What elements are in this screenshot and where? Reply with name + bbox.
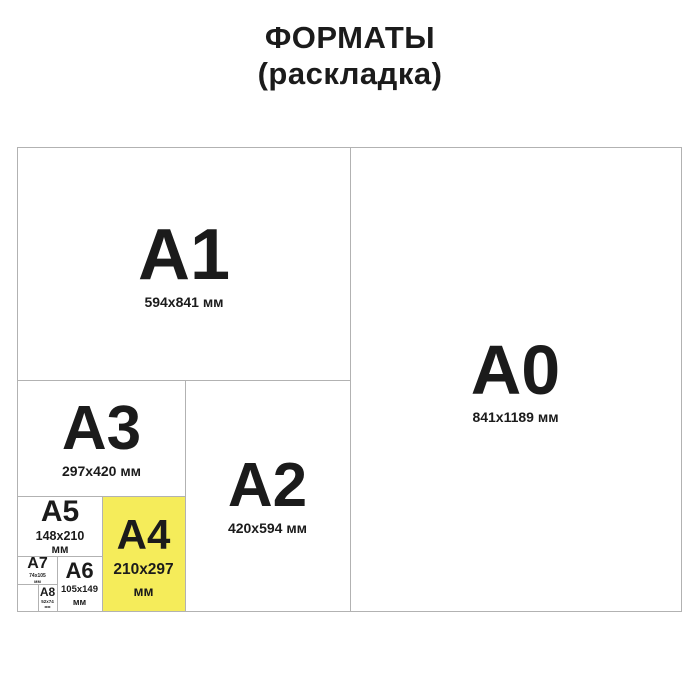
paper-a8: A8 52x74 мм <box>38 584 57 611</box>
paper-a6: A6 105x149 мм <box>57 556 102 611</box>
paper-a4-dims: 210x297 <box>113 561 173 579</box>
paper-a4-code: A4 <box>117 514 171 556</box>
page-title-line1: ФОРМАТЫ <box>0 20 700 56</box>
paper-a5-code: A5 <box>41 497 79 527</box>
paper-a5-dims: 148x210 <box>36 529 85 543</box>
paper-a8-code: A8 <box>40 586 55 598</box>
divider-a1-bottom <box>18 380 350 381</box>
paper-a2-code: A2 <box>228 455 307 517</box>
divider-a4-left <box>102 496 103 611</box>
paper-a7-code: A7 <box>27 556 47 572</box>
paper-a1: A1 594x841 мм <box>18 148 350 380</box>
paper-a2-dims: 420x594 мм <box>228 520 307 536</box>
paper-a4: A4 210x297 мм <box>102 496 185 611</box>
paper-a3: A3 297x420 мм <box>18 380 185 496</box>
paper-a3-code: A3 <box>62 398 141 460</box>
page-title-line2: (раскладка) <box>0 56 700 92</box>
paper-a5: A5 148x210 мм <box>18 496 102 556</box>
page-title: ФОРМАТЫ (раскладка) <box>0 20 700 92</box>
paper-a1-code: A1 <box>138 219 230 291</box>
divider-a5-bottom <box>18 556 102 557</box>
divider-a8-left <box>38 584 39 611</box>
divider-a0-left <box>350 148 351 611</box>
paper-formats-diagram: A1 594x841 мм A0 841x1189 мм A3 297x420 … <box>17 147 682 612</box>
paper-a0: A0 841x1189 мм <box>350 148 681 611</box>
paper-a6-dims: 105x149 <box>61 584 98 595</box>
paper-a2: A2 420x594 мм <box>185 380 350 611</box>
paper-a1-dims: 594x841 мм <box>144 294 223 310</box>
paper-a8-dims-unit: мм <box>45 604 51 609</box>
paper-a0-dims: 841x1189 мм <box>472 409 558 425</box>
paper-a4-dims-unit: мм <box>134 584 154 599</box>
paper-a5-dims-unit: мм <box>51 544 68 556</box>
page-root: ФОРМАТЫ (раскладка) A1 594x841 мм A0 841… <box>0 0 700 700</box>
paper-a6-dims-unit: мм <box>73 597 86 607</box>
paper-a6-code: A6 <box>65 560 93 582</box>
paper-a0-code: A0 <box>471 335 560 405</box>
paper-a3-dims: 297x420 мм <box>62 463 141 479</box>
divider-a6-left <box>57 556 58 611</box>
paper-a7: A7 74x105 мм <box>18 556 57 584</box>
divider-a2-left <box>185 380 186 611</box>
